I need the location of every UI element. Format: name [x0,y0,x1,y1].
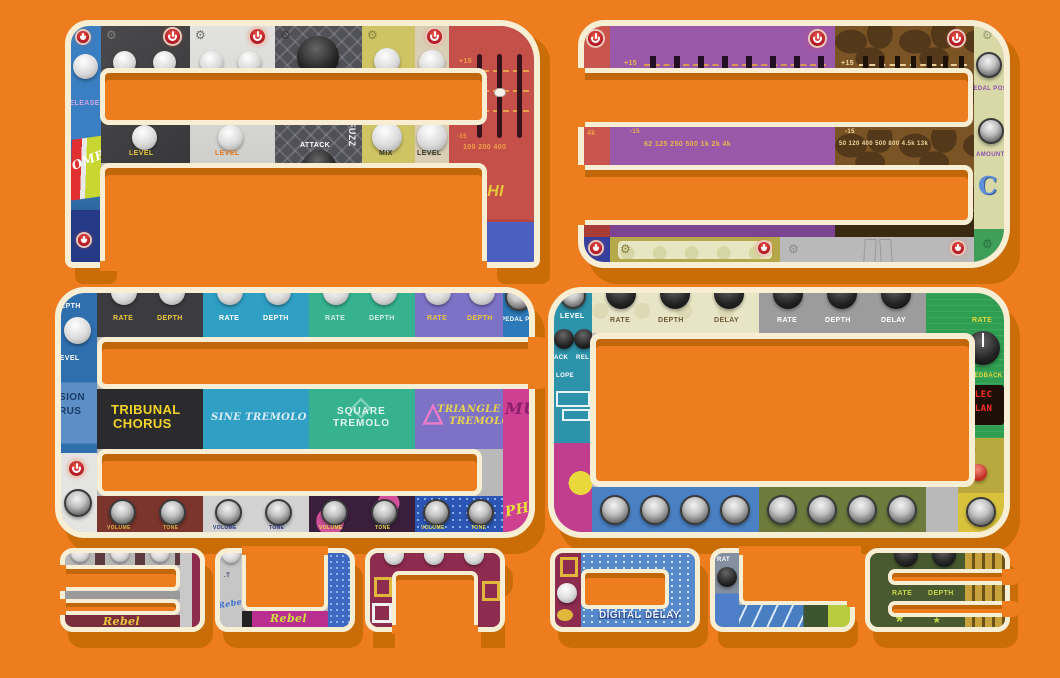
volume-label: VOLUME [213,526,237,531]
eq-min-label: -15 [630,129,640,135]
pedal-right-leg [478,571,500,627]
knob-icon [978,118,1004,144]
pedal-rebel: Rebel [65,615,180,627]
knob-icon [425,293,451,305]
knob-icon [773,293,803,309]
knob-icon [215,499,242,526]
attack-label: ACK [554,355,568,361]
knob-icon [384,553,404,565]
label-fragment: .T [224,573,230,579]
pedal-name: DIGITAL [599,611,641,621]
slot-stub [48,599,66,615]
knob-icon [217,293,243,305]
power-icon [69,461,84,476]
amount-label: AMOUNT [976,152,1004,158]
knob-icon [467,499,494,526]
depth-label: DEPTH [825,317,851,324]
eq-max-label: +15 [841,60,854,67]
wave-art [739,605,803,627]
pedal-bottom-bar: Rebel [242,611,328,627]
knob-icon [680,495,710,525]
pedal-tremolo-green: RATE DEPTH [309,293,415,337]
pedal-name: CHORUS [113,417,172,430]
open-bottom-patch [392,625,478,634]
stencil-slot [584,68,973,127]
open-bottom-patch [100,261,487,271]
rate-label: RATE [113,315,133,322]
pedal-name-fragment: PH [504,501,529,520]
eq-freq-labels: 50 120 400 500 800 4.5k 13k [839,141,928,147]
knob-icon [966,497,996,527]
eq-min-label: -15 [845,129,855,135]
delay-label: DELAY [881,317,906,324]
digit-6-collage: DEPTH LEVEL SION RUS RATE DEPTH RATE DEP… [55,287,535,538]
pedal-lime-spine: ⚙ PEDAL POS AMOUNT C ⚙ [974,26,1004,262]
rebel-script: Rebel [103,616,140,627]
knob-icon [423,499,450,526]
signature-art: Rebel [220,597,242,610]
gear-icon: ⚙ [106,29,117,41]
stencil-slot [590,333,975,487]
pedal-blue-left: DEPTH LEVEL SION RUS [61,293,97,453]
pedal-chorus-cream: RATE DEPTH DELAY [592,293,759,333]
rate-label: RATE [610,317,630,324]
pedal-bottom-bar [739,605,850,627]
knob-icon [265,293,291,305]
depth-label: DEPTH [263,315,289,322]
knob-icon [714,293,744,309]
tone-label: TONE [269,526,284,531]
pedal-bottom-maroon: VOLUME TONE [97,496,203,532]
knob-icon [560,293,586,309]
letter-e-collage: RATE DEPTH * * [865,548,1010,632]
slot-stub [1002,569,1019,585]
pedal-name-fragment: MU [505,401,529,417]
knob-icon [218,125,243,150]
pedal-name: TRIBUNAL [111,403,181,416]
open-top-patch [739,546,850,555]
pedal-pink-corner [554,443,592,532]
release-label: RELEASE [71,100,100,107]
knob-icon [302,150,336,163]
knob-icon [606,293,636,309]
stencil-slot [97,337,529,389]
pedal-pos-label: PEDAL PO [503,317,529,323]
pedal-left-leg [370,571,392,627]
knob-pointer [982,333,984,347]
knob-icon [600,495,630,525]
knob-icon [887,495,917,525]
knob-icon [323,293,349,305]
power-icon [810,31,825,46]
digit-a-collage: RELEASE OMP ⚙ LEVEL ⚙ LEVEL ⚙ ATTACK [65,20,540,268]
pedal-top-bar [870,553,965,569]
knob-icon [64,489,92,517]
knob-icon [505,293,529,311]
knob-icon [371,293,397,305]
depth-label: DEPTH [467,315,493,322]
slot-stub [562,165,585,225]
pedal-tremolo-dark: RATE DEPTH [97,293,203,337]
pedal-pos-label: PEDAL POS [974,86,1004,92]
pedal-bottom-gray: VOLUME TONE [203,496,309,532]
pedal-name-triangle: △ TRIANGLE TREMOLO [415,389,503,449]
gear-icon: ⚙ [620,243,631,255]
knob-icon [554,329,574,349]
pedal-white-left [61,453,97,532]
stencil-slot [392,571,478,627]
pedal-olive: ⚙ [610,237,780,262]
stencil-slot [97,449,482,496]
pedal-name: SINE TREMOLO [211,413,307,423]
release-label: REL [576,355,589,361]
power-icon [77,31,89,43]
gear-icon: ⚙ [195,29,206,41]
pedal-spine [180,553,200,627]
level-label: LEVEL [560,313,585,320]
power-icon [952,242,964,254]
eq-max-label: +15 [459,58,472,65]
olive-panel [618,241,772,259]
gear-icon: ⚙ [280,29,291,41]
knob-icon [557,583,577,603]
power-icon [590,242,602,254]
pedal-tremolo-teal: RATE DEPTH [203,293,309,337]
delay-label: DELAY [714,317,739,324]
tone-label: TONE [375,526,390,531]
knob-icon [717,567,737,587]
stencil-slot [888,601,1005,617]
volume-label: VOLUME [421,526,445,531]
stencil-slot [584,165,973,225]
rebel-script: Rebel [270,613,307,624]
pedal-name: TREMOLO [449,417,503,427]
open-right-patch [847,546,861,607]
depth-label: DEPTH [157,315,183,322]
knob-icon [660,293,690,309]
slot-stub [48,565,66,591]
knob-icon [321,499,348,526]
stencil-slot [65,599,180,615]
power-icon [427,29,442,44]
pedal-blue-right-top: PEDAL PO [503,293,529,337]
trouser-art [863,239,877,262]
pedal-mid-sliver [65,591,180,599]
pedal-yellow-corner [958,493,1004,532]
power-icon [949,31,964,46]
power-icon [758,242,770,254]
pedal-left-col: RAT [715,553,739,627]
depth-label: DEPTH [928,590,954,597]
pedal-envelope: LEVEL ACK REL LOPE [554,293,592,443]
level-label: LEVEL [417,150,442,157]
freq-label: 4k [587,130,596,137]
pedal-name-tribunal: TRIBUNAL CHORUS [97,389,203,449]
letter-u-collage: .T Rebel Rebel [215,548,355,632]
gear-icon: ⚙ [367,29,378,41]
sun-icon: * [934,617,940,627]
pedal-strip [65,553,180,565]
trouser-art [879,239,893,262]
pedal-name: TREMOLO [333,419,390,429]
volume-label: VOLUME [319,526,343,531]
eq-freq-labels: 100 200 400 [463,144,506,151]
slot-stub [1002,601,1019,617]
h-frame-art [372,603,392,623]
fuzz-vertical-label: FUZZ [347,122,356,147]
gear-icon: ⚙ [982,29,993,41]
h-frame-art [374,577,392,597]
knob-icon [881,293,911,309]
tone-label: TONE [163,526,178,531]
knob-icon [222,553,240,563]
pedal-name-sine: SINE TREMOLO [203,389,309,449]
open-top-patch [242,546,328,555]
knob-icon [976,52,1002,78]
stencil-slot [581,569,669,609]
letter-l-collage: RAT [710,548,855,632]
pedal-gray: ⚙ [780,237,974,262]
knob-icon [109,499,136,526]
poster: RELEASE OMP ⚙ LEVEL ⚙ LEVEL ⚙ ATTACK [0,0,1060,678]
letter-b-collage: Rebel [60,548,205,632]
slot-stub [528,337,548,389]
envelope-label: LOPE [556,373,574,379]
eq-slider [517,54,522,138]
pedal-bottom-magenta: VOLUME TONE [309,496,415,532]
rate-label: RAT [717,557,730,563]
pedal-name: TRIANGLE [437,405,501,415]
knob-icon [111,293,137,305]
knob-icon [73,54,98,79]
knob-icon [71,553,89,562]
h-frame-art [560,557,578,577]
knob-icon [827,293,857,309]
attack-label: ATTACK [300,142,330,149]
knob-icon [372,122,402,152]
chorus-logo: C [978,174,998,198]
mix-label: MIX [379,150,393,157]
sun-icon: * [896,617,903,627]
slot-stub [562,68,585,127]
eq-min-label: -15 [457,134,467,140]
knob-icon [932,553,956,567]
knob-icon [464,553,484,565]
knob-icon [159,499,186,526]
rate-label: RATE [972,317,992,324]
knob-icon [111,553,129,562]
rate-label: RATE [219,315,239,322]
knob-icon [469,293,495,305]
power-icon [588,31,603,46]
eq-handle [494,88,506,97]
rate-label: RATE [325,315,345,322]
stencil-slot [100,163,487,262]
tone-label: TONE [471,526,486,531]
volume-label: VOLUME [107,526,131,531]
knob-icon [151,553,169,562]
knob-icon [807,495,837,525]
rate-label: RATE [427,315,447,322]
pedal-compressor: RELEASE OMP [71,26,101,262]
power-icon [165,29,180,44]
rate-label: RATE [892,590,912,597]
blob-art [557,609,573,621]
gear-icon: ⚙ [788,243,799,255]
stencil-slot [739,553,850,605]
knob-icon [894,553,918,567]
eq-max-label: +15 [624,60,637,67]
level-label: LEVEL [61,355,80,362]
pedal-multi-phaser: MU PH [503,389,529,532]
level-label: LEVEL [215,150,240,157]
pedal-name-fragment: SION [61,393,85,403]
pedal-name: SQUARE [337,407,386,417]
pedal-left-spine [555,553,581,627]
digit-0-collage: LEVEL ACK REL LOPE RATE DEPTH DELAY RATE… [548,287,1010,538]
knob-icon [847,495,877,525]
envelope-graph [556,391,590,407]
knob-icon [132,125,157,150]
digit-3-collage: 4k +15 -15 62 125 250 500 1k 2k 4k +15 -… [578,20,1010,268]
pedal-name-square: ◇ SQUARE TREMOLO [309,389,415,449]
pedal-name-fragment: RUS [61,407,81,417]
h-frame-art [482,581,500,601]
pedal-left-col: .T Rebel [220,553,242,627]
pedal-bottom-blue-knobs [592,487,759,532]
rate-label: RATE [777,317,797,324]
eq-freq-labels: 62 125 250 500 1k 2k 4k [644,141,731,148]
letter-d-collage: DIGITAL DELAY [550,548,700,632]
pedal-bottom-bar: * * [870,617,965,627]
knob-icon [64,317,91,344]
knob-icon [159,293,185,305]
knob-icon [417,122,447,152]
pedal-top-bar [370,553,500,571]
depth-label: DEPTH [658,317,684,324]
pedal-mid-bar: RATE DEPTH [870,585,965,601]
knob-icon [265,499,292,526]
stencil-slot [65,565,180,591]
knob-icon [767,495,797,525]
pedal-tremolo-violet: RATE DEPTH [415,293,503,337]
stencil-slot [100,68,487,125]
letter-n-collage [365,548,505,632]
level-label: LEVEL [129,150,154,157]
stencil-slot [242,553,328,611]
pedal-right-col [328,553,350,627]
envelope-graph [562,409,590,421]
knob-icon [424,553,444,565]
knob-icon [720,495,750,525]
gear-icon: ⚙ [982,238,993,250]
depth-label: DEPTH [369,315,395,322]
knob-icon [371,499,398,526]
stencil-slot [888,569,1005,585]
pedal-navy-corner [584,237,610,262]
depth-label: DEPTH [61,303,81,310]
pedal-bottom-blue: VOLUME TONE [415,496,503,532]
knob-icon [640,495,670,525]
pedal-bottom-olive-knobs [759,487,926,532]
power-icon [78,234,90,246]
pedal-name: DELAY [645,611,680,621]
pedal-chorus-gray: RATE DEPTH DELAY [759,293,926,333]
power-icon [250,29,265,44]
